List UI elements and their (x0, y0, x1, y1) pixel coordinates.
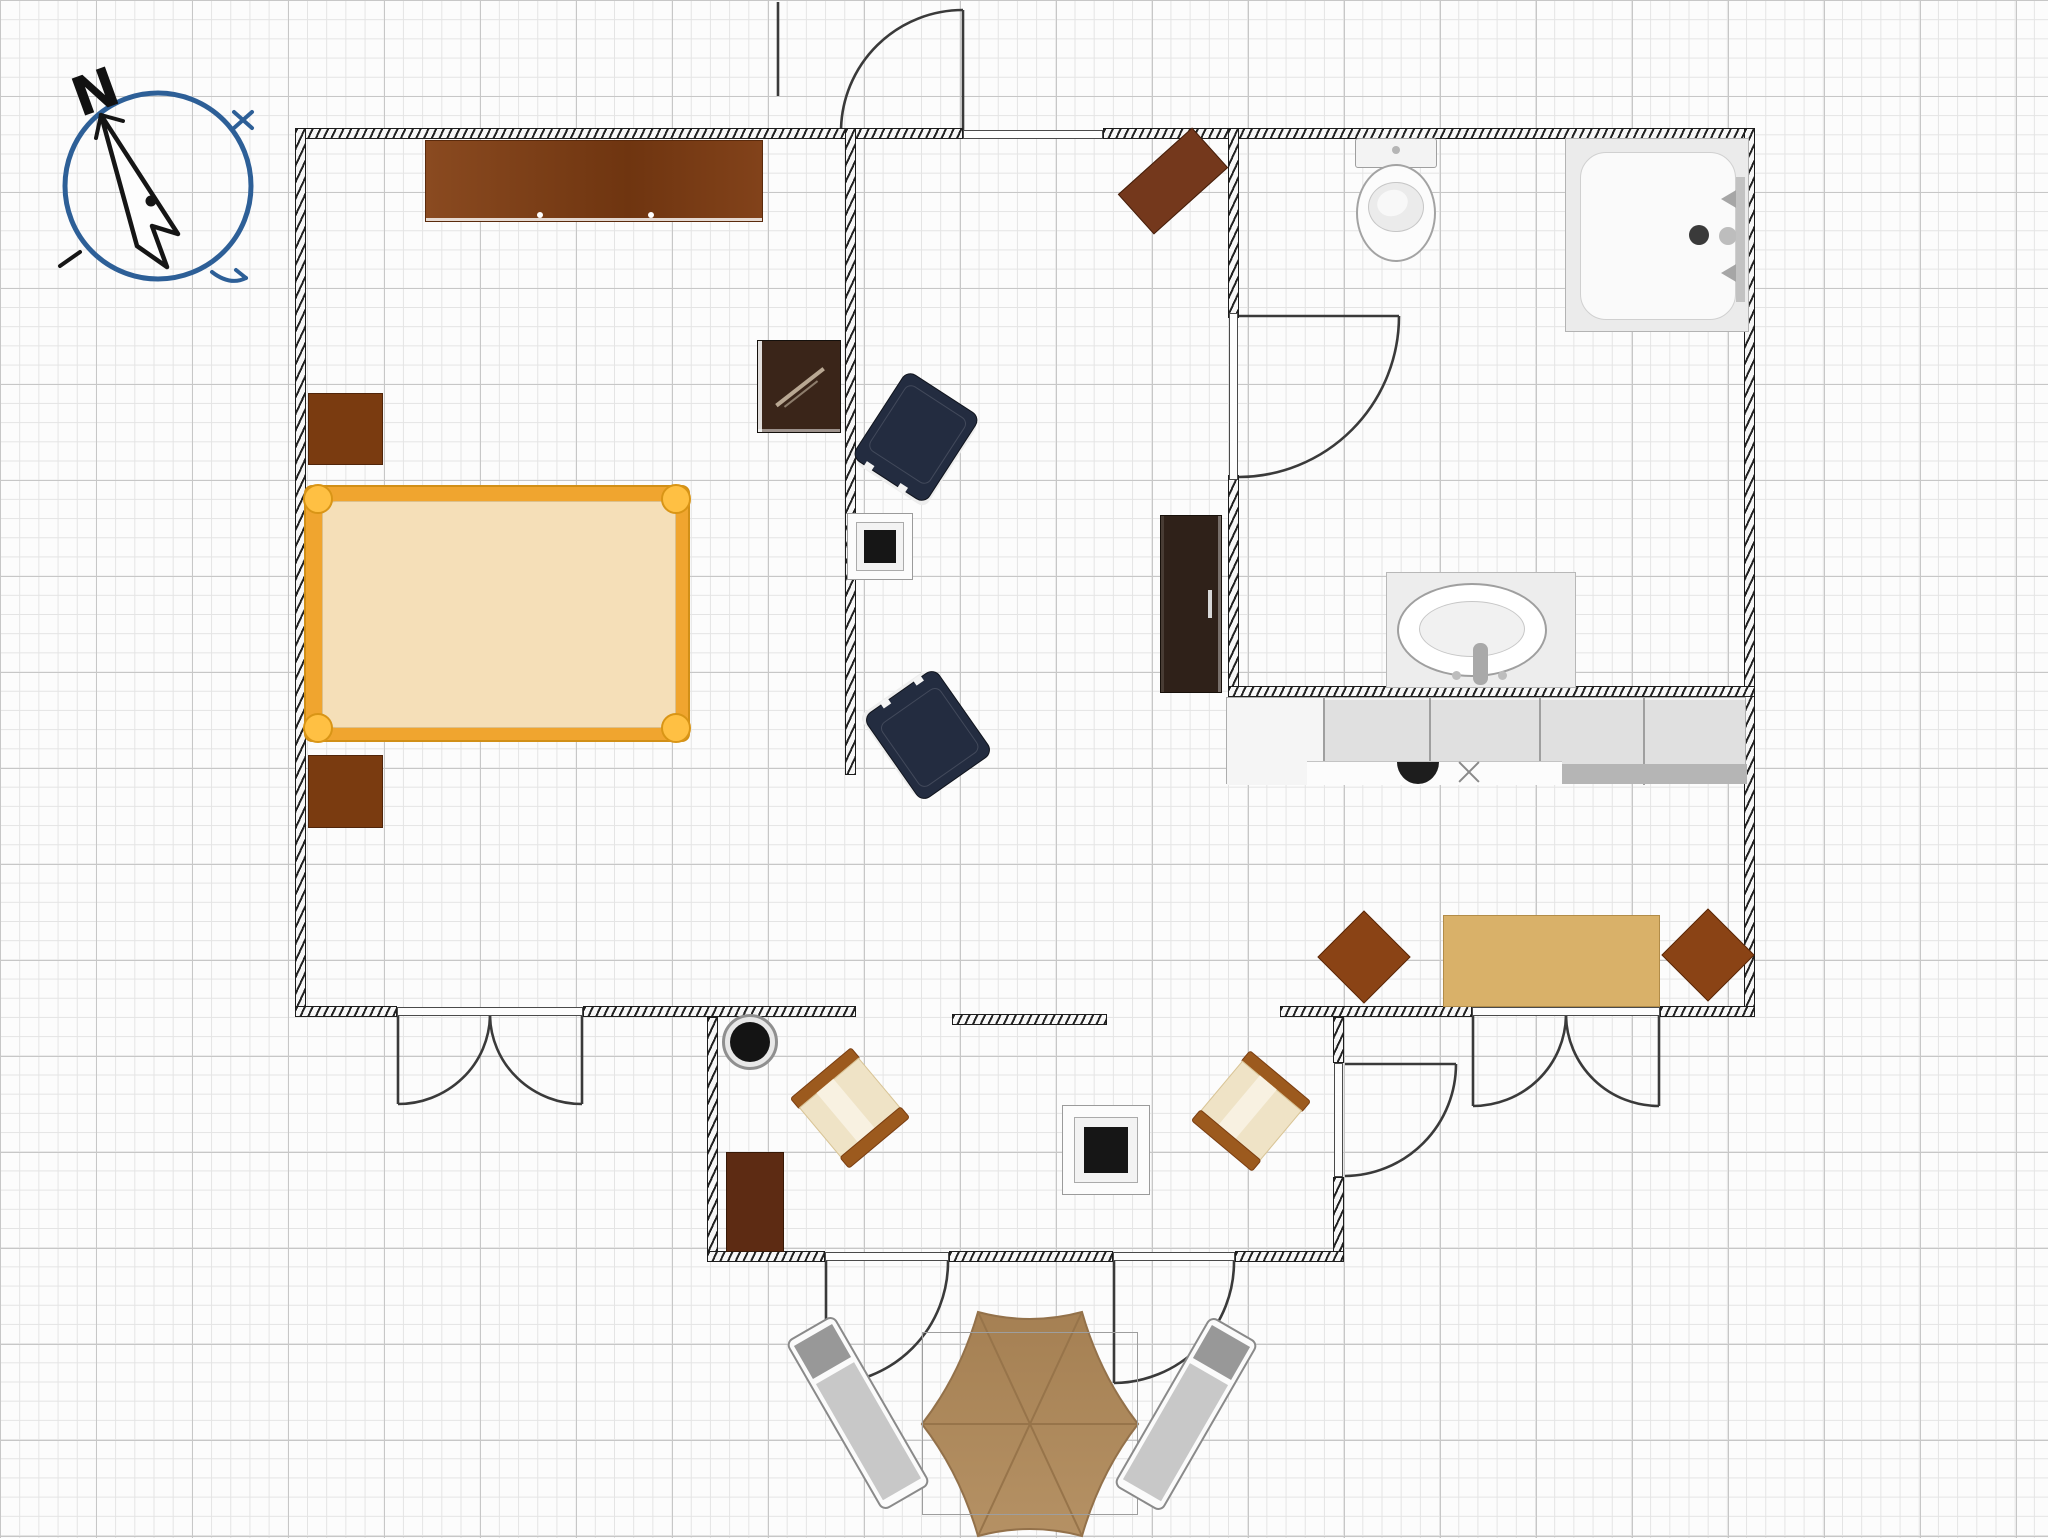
terrace-dining-door[interactable] (1345, 1064, 1456, 1176)
door-swing-arc (1473, 1016, 1566, 1106)
compass-mark (234, 112, 252, 128)
compass-mark (236, 270, 246, 278)
wall-terrace-bottom-3[interactable] (1235, 1251, 1344, 1262)
tap-dot (1452, 671, 1461, 680)
armchair-navy-1[interactable] (851, 369, 981, 504)
shower-rail (1736, 177, 1745, 302)
wall-top-left[interactable] (295, 128, 963, 139)
double-bed[interactable] (304, 485, 690, 742)
wardrobe[interactable] (425, 140, 763, 222)
kitchen-counter[interactable] (1226, 697, 1746, 784)
patio-outline[interactable] (922, 1332, 1138, 1515)
dresser-handle (1208, 590, 1212, 618)
compass-needle (101, 115, 178, 267)
armchair-navy-2[interactable] (862, 667, 994, 803)
bed-mattress (322, 501, 676, 728)
toilet[interactable] (1353, 138, 1439, 264)
compass-tick (60, 252, 80, 266)
wall-terrace-bottom-1[interactable] (707, 1251, 825, 1262)
wall-terrace-right-upper[interactable] (1333, 1017, 1344, 1063)
compass-needle-barb (101, 115, 123, 121)
bed-post (303, 713, 333, 743)
plant-pot[interactable] (722, 1014, 778, 1070)
wicker-chair-1[interactable] (790, 1047, 910, 1169)
wall-dining-bottom-right[interactable] (1660, 1006, 1755, 1017)
wall-dining-bottom-left[interactable] (1280, 1006, 1472, 1017)
wall-bedroom-bottom-right[interactable] (583, 1006, 856, 1017)
door-swing-arc (490, 1016, 582, 1104)
bedroom-french-door[interactable] (398, 1016, 582, 1104)
wall-terrace-left[interactable] (707, 1017, 718, 1262)
shower-drain (1689, 225, 1709, 245)
basin-bowl (1419, 601, 1525, 657)
bedroom-door-threshold[interactable] (397, 1007, 583, 1016)
lounge-chair-1[interactable] (785, 1314, 931, 1512)
shower-knob (1719, 227, 1737, 245)
wall-bathroom-left-lower[interactable] (1228, 475, 1239, 697)
wall-terrace-top[interactable] (952, 1014, 1107, 1025)
wall-shelf-angled[interactable] (1118, 127, 1228, 234)
compass-mark (234, 112, 252, 128)
bed-post (661, 713, 691, 743)
door-swing-arc (1345, 1064, 1456, 1176)
table-top (864, 530, 896, 563)
wicker-chair-2[interactable] (1191, 1050, 1311, 1172)
pot-body (730, 1022, 770, 1062)
wall-terrace-right-lower[interactable] (1333, 1177, 1344, 1262)
terrace-door-threshold[interactable] (1334, 1063, 1343, 1177)
counter-shelf-bar (1562, 764, 1747, 784)
nightstand-top[interactable] (308, 393, 383, 465)
shower[interactable] (1565, 138, 1749, 332)
side-table-living[interactable] (847, 513, 913, 580)
dining-french-door[interactable] (1473, 1016, 1659, 1106)
compass-ring (65, 93, 251, 279)
tv-bedroom[interactable] (757, 340, 841, 433)
wall-bathroom-left-upper[interactable] (1228, 128, 1239, 318)
entrance-threshold[interactable] (963, 130, 1103, 139)
compass-rose: N (60, 55, 252, 281)
compass-pivot (146, 196, 157, 207)
wall-bedroom-bottom-left[interactable] (295, 1006, 397, 1017)
compass-north-label: N (63, 55, 127, 130)
dining-chair-2[interactable] (1661, 908, 1754, 1001)
dresser-terrace[interactable] (726, 1152, 784, 1252)
side-table-terrace[interactable] (1062, 1105, 1150, 1195)
patio-door-right-threshold[interactable] (1113, 1252, 1235, 1261)
wall-terrace-bottom-2[interactable] (949, 1251, 1113, 1262)
dining-chair-1[interactable] (1317, 910, 1410, 1003)
table-top (1084, 1127, 1128, 1173)
bathroom-door[interactable] (1239, 316, 1399, 477)
bathroom-door-threshold[interactable] (1229, 313, 1238, 480)
door-swing-arc (1566, 1016, 1659, 1106)
tv-glare (775, 367, 825, 407)
wardrobe-handle (537, 212, 543, 218)
toilet-button (1392, 146, 1400, 154)
compass-mark (212, 272, 246, 281)
bed-post (303, 484, 333, 514)
dining-door-threshold[interactable] (1472, 1007, 1660, 1016)
wardrobe-handle (648, 212, 654, 218)
shower-tray (1580, 152, 1736, 320)
bed-post (661, 484, 691, 514)
floorplan-canvas: N (0, 0, 2048, 1538)
dining-table[interactable] (1443, 915, 1660, 1007)
door-swing-arc (841, 10, 963, 130)
door-swing-arc (398, 1016, 490, 1104)
dresser-living[interactable] (1160, 515, 1222, 693)
faucet (1473, 643, 1488, 685)
compass-needle-barb (96, 115, 101, 138)
patio-door-left-threshold[interactable] (825, 1252, 949, 1261)
door-swing-arc (1239, 316, 1399, 477)
tap-dot (1498, 671, 1507, 680)
sink-vanity[interactable] (1386, 572, 1576, 688)
entrance-door[interactable] (778, 2, 963, 130)
nightstand-bottom[interactable] (308, 755, 383, 828)
